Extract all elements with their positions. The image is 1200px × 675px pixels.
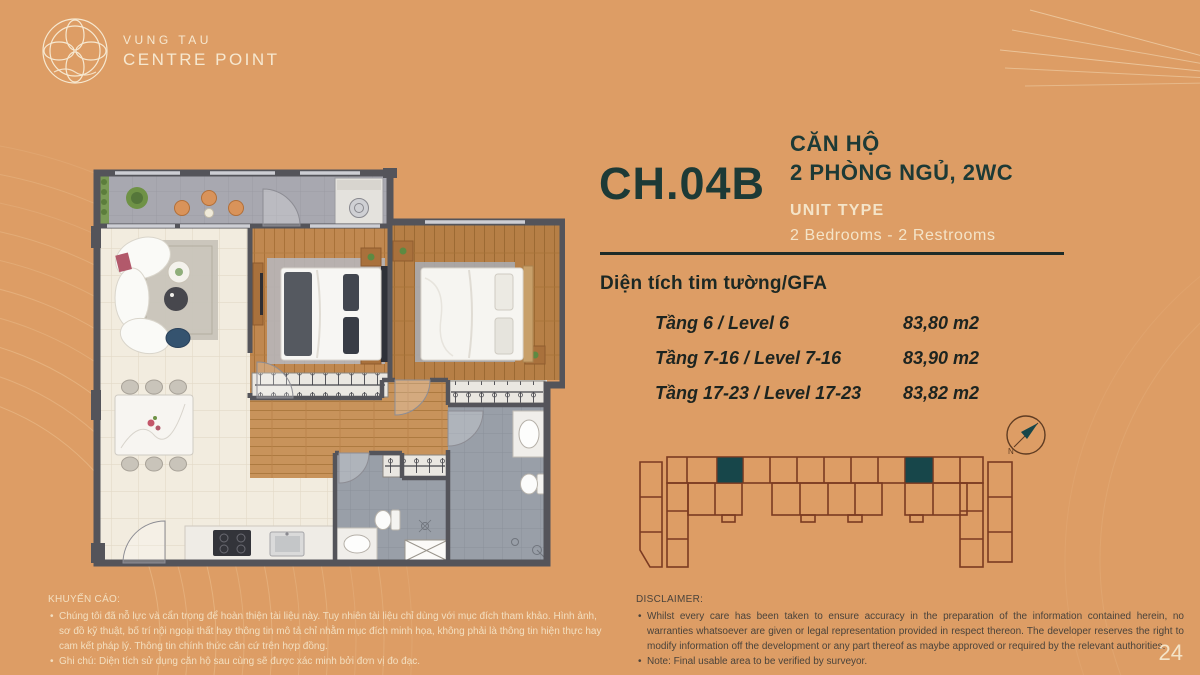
unit-bedrooms-vi: 2 PHÒNG NGỦ, 2WC	[790, 159, 1013, 188]
page-number: 24	[1159, 640, 1183, 666]
section-divider	[600, 252, 1064, 255]
disclaimer-heading: DISCLAIMER:	[636, 592, 1184, 607]
area-row: Tầng 6 / Level 6 83,80 m2	[655, 313, 987, 334]
compass-icon: N	[1004, 413, 1048, 462]
brochure-page: VUNG TAU CENTRE POINT CH.04B CĂN HỘ 2 PH…	[0, 0, 1200, 675]
toilet-icon	[375, 510, 400, 530]
brand-name-line1: VUNG TAU	[123, 33, 280, 47]
highlighted-unit	[717, 457, 743, 483]
area-row-value: 83,90 m2	[903, 348, 979, 369]
disclaimer-bullet: Note: Final usable area to be verified b…	[636, 654, 1184, 669]
area-row-value: 83,80 m2	[903, 313, 979, 334]
unit-subheading: CĂN HỘ 2 PHÒNG NGỦ, 2WC UNIT TYPE 2 Bedr…	[790, 130, 1013, 245]
unit-code: CH.04B	[599, 158, 765, 210]
bed	[281, 266, 389, 362]
kitchen-counter	[185, 526, 335, 560]
sink-icon	[344, 535, 370, 553]
highlighted-unit	[905, 457, 933, 483]
disclaimer-note: DISCLAIMER: Whilst every care has been t…	[636, 592, 1184, 669]
toilet-icon	[521, 474, 547, 494]
brand-name-line2: CENTRE POINT	[123, 50, 280, 70]
unit-type-value: 2 Bedrooms - 2 Restrooms	[790, 227, 1013, 245]
building-key-plan	[638, 448, 1016, 575]
floor-plan	[85, 168, 565, 578]
unit-name-vi: CĂN HỘ	[790, 130, 1013, 159]
area-row: Tầng 7-16 / Level 7-16 83,90 m2	[655, 348, 987, 369]
unit-type-label: UNIT TYPE	[790, 202, 1013, 220]
area-row-label: Tầng 7-16 / Level 7-16	[655, 348, 903, 369]
bed	[421, 266, 533, 362]
sink-icon	[519, 420, 539, 448]
dining-set	[115, 380, 193, 471]
advisory-bullet: Chúng tôi đã nỗ lực và cẩn trọng để hoàn…	[48, 609, 606, 654]
area-row-label: Tầng 17-23 / Level 17-23	[655, 383, 903, 404]
lotus-logo-icon	[40, 16, 110, 86]
armchair	[166, 329, 190, 348]
disclaimer-bullet: Whilst every care has been taken to ensu…	[636, 609, 1184, 654]
side-table	[164, 287, 188, 311]
area-heading: Diện tích tim tường/GFA	[600, 273, 827, 295]
washing-machine-icon	[350, 199, 369, 218]
advisory-note: KHUYẾN CÁO: Chúng tôi đã nỗ lực và cẩn t…	[48, 592, 606, 669]
advisory-bullet: Ghi chú: Diện tích sử dụng căn hộ sau cù…	[48, 654, 606, 669]
advisory-heading: KHUYẾN CÁO:	[48, 592, 606, 607]
area-row-label: Tầng 6 / Level 6	[655, 313, 903, 334]
svg-text:N: N	[1008, 447, 1014, 456]
area-row-value: 83,82 m2	[903, 383, 979, 404]
brand-logo: VUNG TAU CENTRE POINT	[40, 16, 280, 86]
area-row: Tầng 17-23 / Level 17-23 83,82 m2	[655, 383, 987, 404]
area-table: Tầng 6 / Level 6 83,80 m2 Tầng 7-16 / Le…	[655, 313, 987, 418]
